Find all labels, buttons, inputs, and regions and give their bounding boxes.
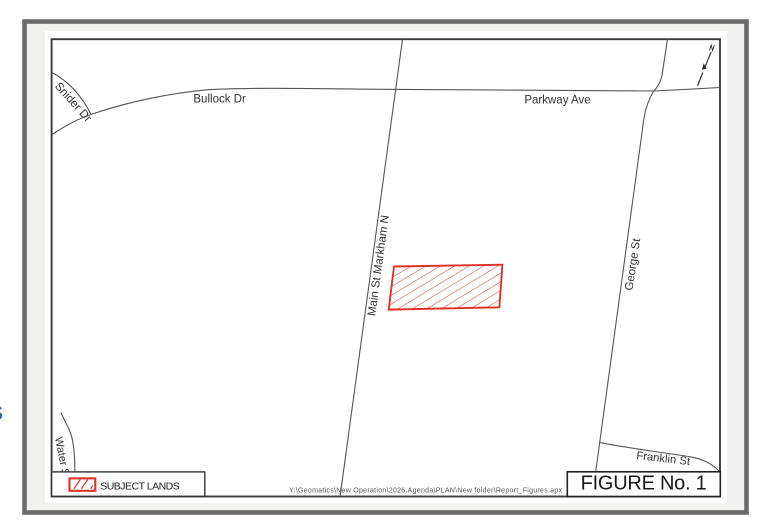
svg-text:Parkway Ave: Parkway Ave: [524, 94, 590, 106]
svg-text:Bullock Dr: Bullock Dr: [193, 94, 246, 106]
svg-text:SUBJECT LANDS: SUBJECT LANDS: [100, 480, 180, 492]
svg-text:Y:\Geomatics\New Operation\202: Y:\Geomatics\New Operation\2026.Agenda\P…: [289, 488, 563, 495]
svg-text:FIGURE No. 1: FIGURE No. 1: [581, 473, 707, 495]
